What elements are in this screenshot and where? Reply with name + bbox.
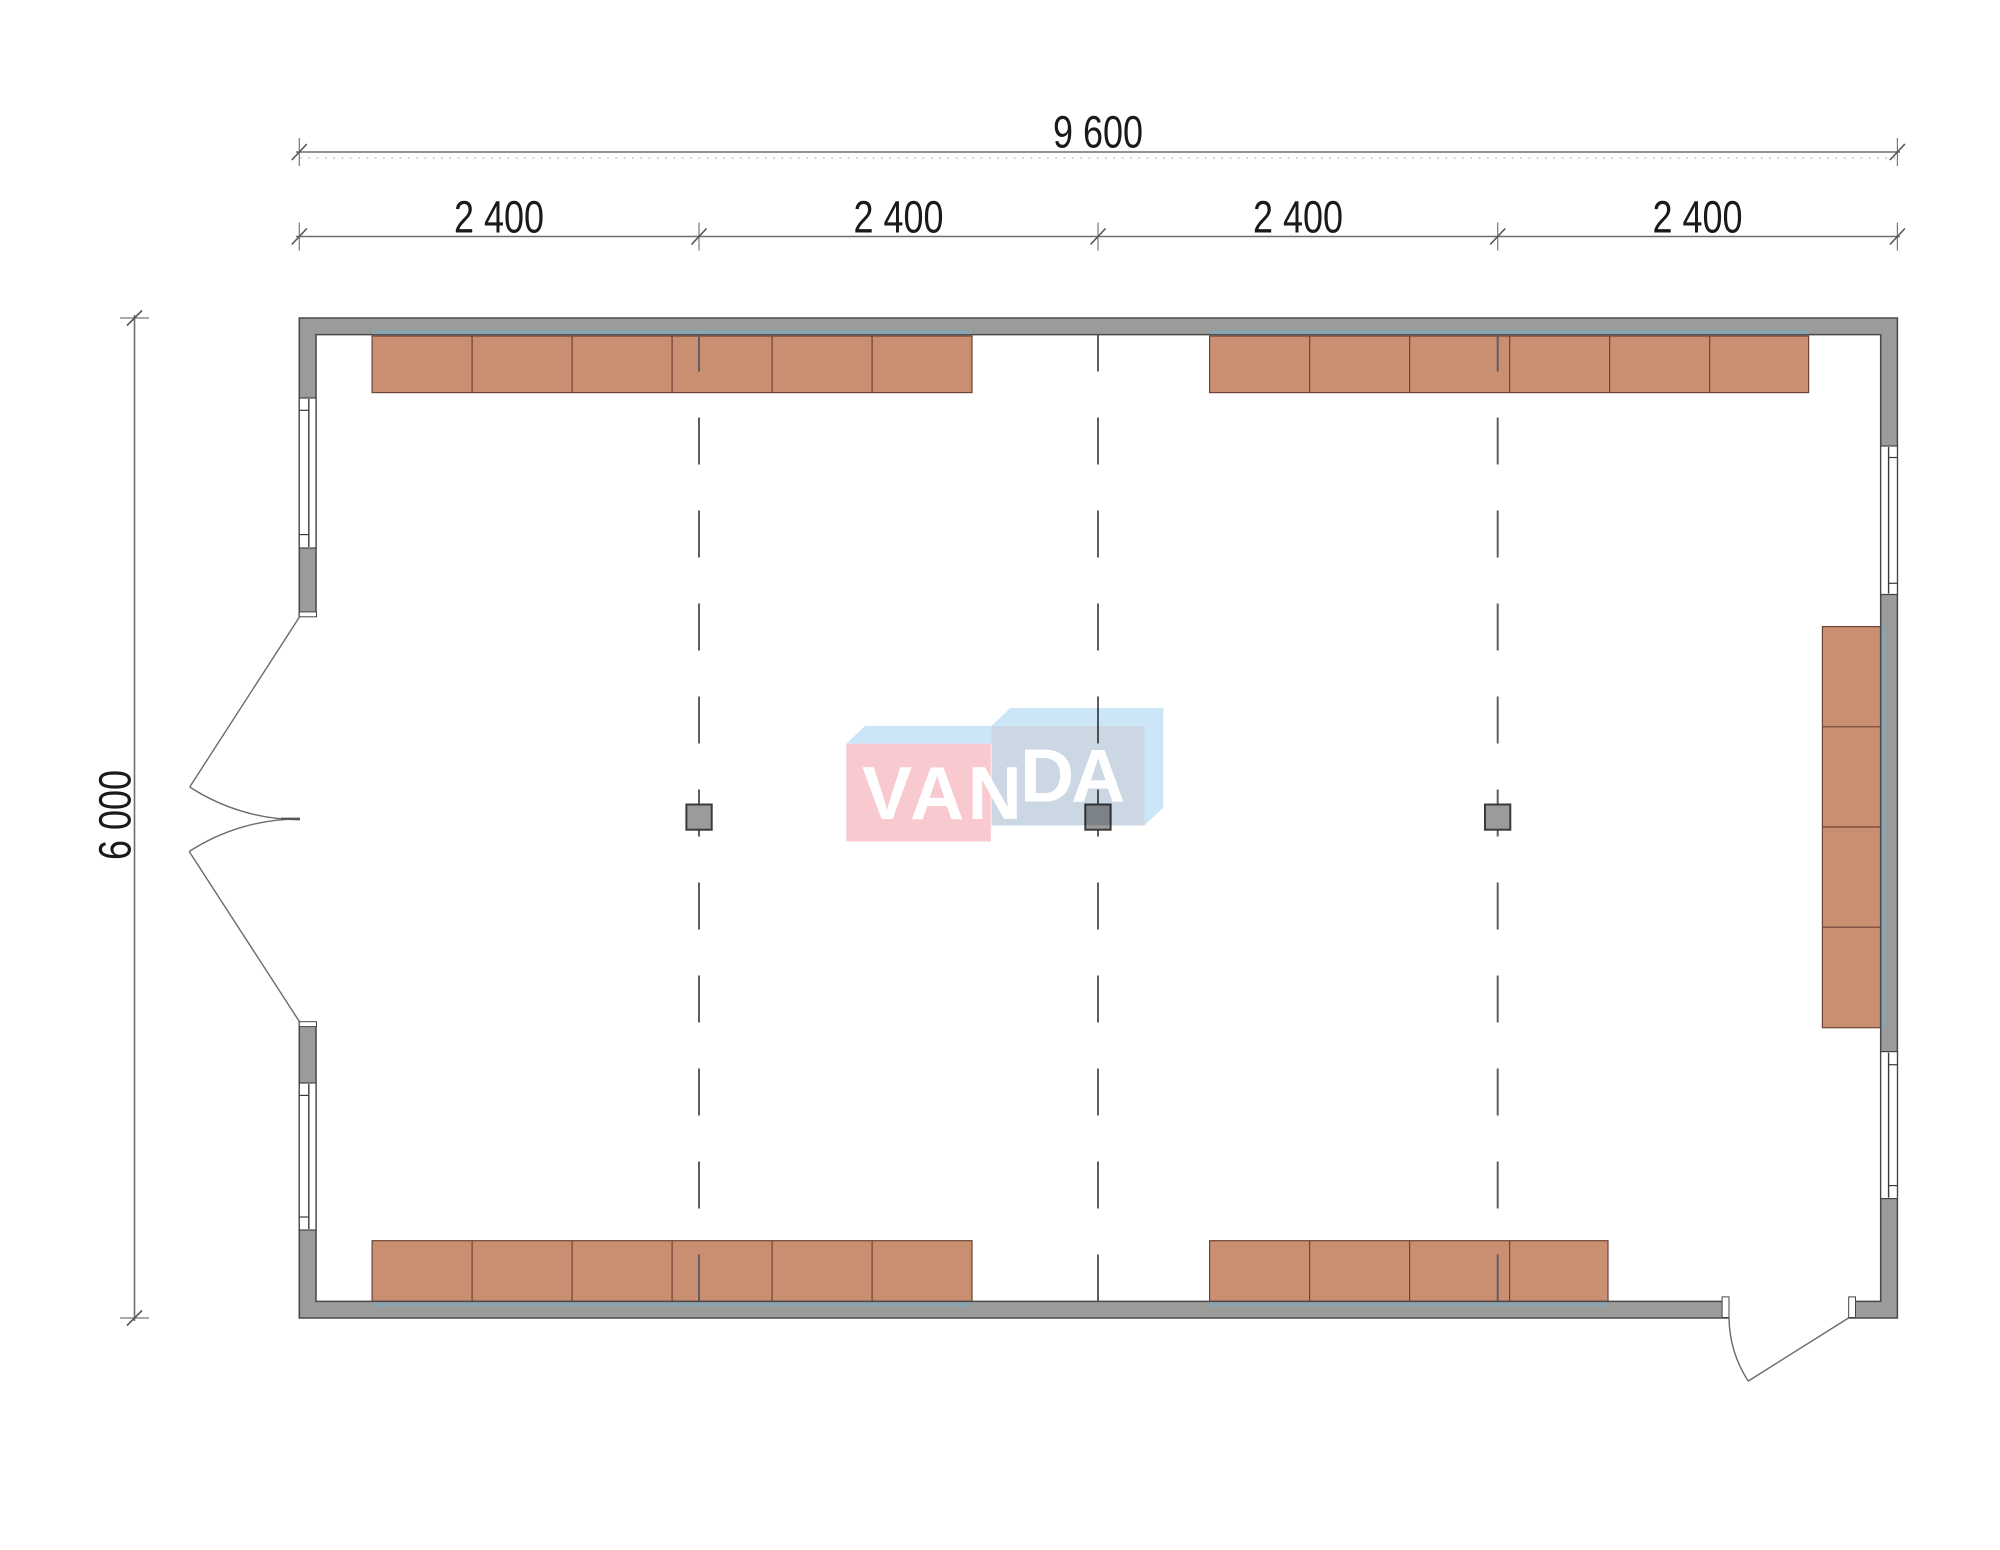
svg-text:VAN: VAN — [862, 751, 1025, 835]
svg-text:2 400: 2 400 — [853, 192, 943, 243]
svg-text:9 600: 9 600 — [1053, 107, 1143, 158]
svg-text:2 400: 2 400 — [454, 192, 544, 243]
svg-text:6 000: 6 000 — [90, 770, 141, 860]
svg-text:2 400: 2 400 — [1652, 192, 1742, 243]
svg-text:2 400: 2 400 — [1253, 192, 1343, 243]
svg-text:DA: DA — [1020, 734, 1124, 818]
